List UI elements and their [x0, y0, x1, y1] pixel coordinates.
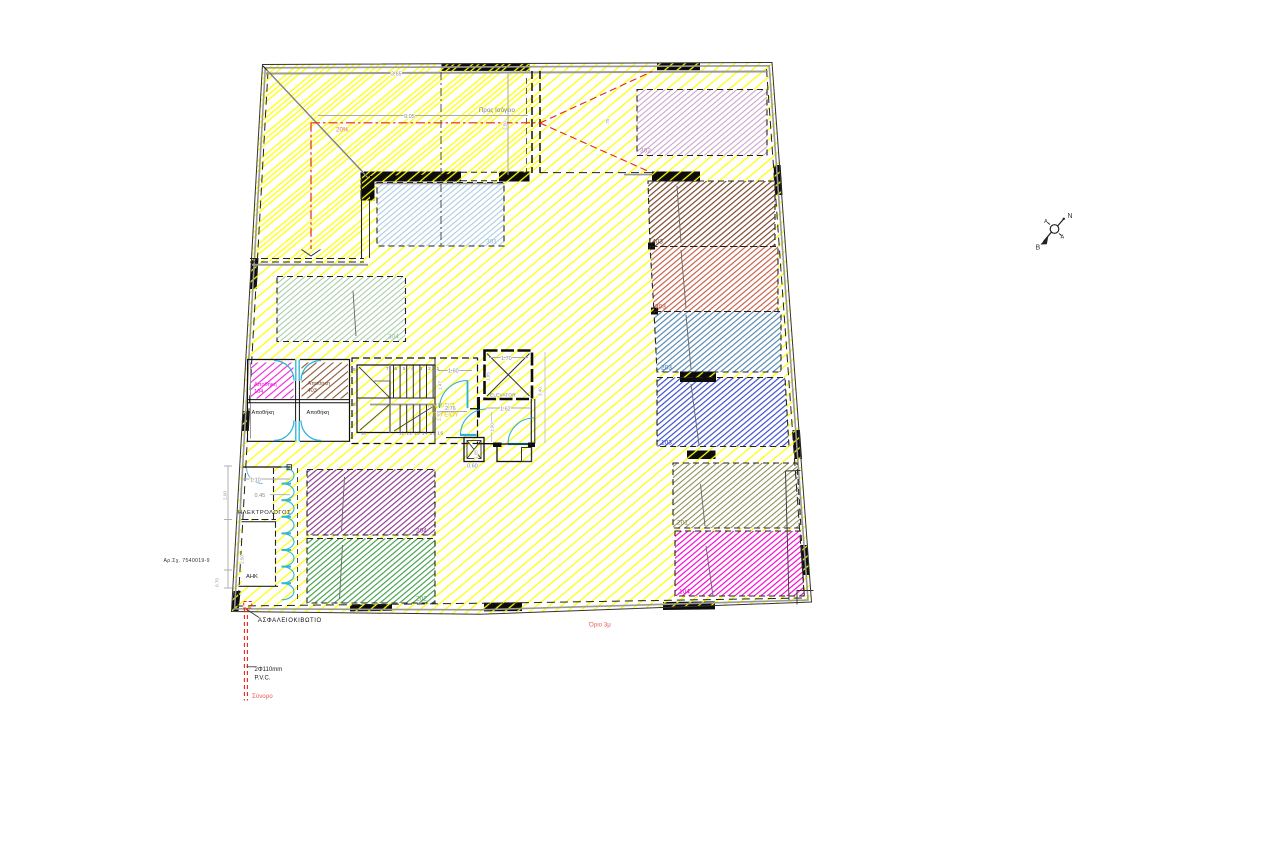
svg-text:P.V.C.: P.V.C.	[255, 675, 271, 681]
svg-text:11 12 13 14 15 16: 11 12 13 14 15 16	[399, 431, 444, 436]
svg-text:302: 302	[640, 148, 651, 155]
svg-text:3.40: 3.40	[538, 387, 543, 396]
svg-text:Αποθήκη: Αποθήκη	[252, 409, 275, 416]
svg-text:403: 403	[652, 239, 663, 246]
svg-text:304: 304	[388, 334, 399, 341]
svg-text:1.62: 1.62	[500, 407, 511, 413]
svg-text:ΥΠΟΓΕΙΟΥ: ΥΠΟΓΕΙΟΥ	[428, 413, 458, 419]
svg-text:3.65: 3.65	[391, 72, 402, 78]
svg-text:2.00: 2.00	[223, 491, 228, 500]
svg-text:ΗΛΕΚΤΡΟΛΟΓΟΣ: ΗΛΕΚΤΡΟΛΟΓΟΣ	[238, 510, 291, 516]
svg-text:7 6 5 4 3 2 1: 7 6 5 4 3 2 1	[386, 366, 441, 371]
svg-text:2.50: 2.50	[503, 121, 508, 130]
svg-text:Αποθήκη: Αποθήκη	[308, 380, 331, 387]
svg-text:Σύνορο: Σύνορο	[252, 693, 273, 700]
svg-text:Όριο 3μ: Όριο 3μ	[588, 622, 611, 629]
svg-text:20%: 20%	[336, 127, 349, 134]
svg-text:1.47: 1.47	[438, 381, 443, 390]
svg-text:9: 9	[353, 402, 356, 407]
svg-text:203: 203	[661, 365, 672, 372]
svg-text:9.05: 9.05	[404, 114, 415, 120]
svg-text:301: 301	[486, 239, 497, 246]
svg-text:0.70: 0.70	[215, 578, 220, 587]
svg-text:1.90: 1.90	[490, 423, 495, 432]
svg-text:.75: .75	[605, 118, 610, 125]
svg-text:2Φ110mm: 2Φ110mm	[255, 667, 283, 673]
svg-text:Αρ.Σχ. 7540019-9: Αρ.Σχ. 7540019-9	[164, 558, 210, 564]
svg-text:ΑΣΦΑΛΕΙΟΚΙΒΩΤΙΟ: ΑΣΦΑΛΕΙΟΚΙΒΩΤΙΟ	[258, 618, 322, 624]
svg-text:8: 8	[353, 367, 356, 372]
svg-text:ΑΗΚ: ΑΗΚ	[246, 574, 258, 580]
svg-text:104: 104	[679, 589, 690, 596]
svg-text:B: B	[1036, 245, 1041, 252]
svg-text:Προς Ισόγειο: Προς Ισόγειο	[479, 107, 515, 114]
svg-text:Α: Α	[1044, 219, 1048, 225]
svg-text:2.50: 2.50	[240, 555, 245, 564]
svg-text:Α: Α	[1061, 235, 1065, 241]
svg-text:1.05: 1.05	[474, 450, 479, 459]
svg-text:1.85: 1.85	[486, 372, 491, 381]
svg-text:Αποθήκη: Αποθήκη	[307, 409, 330, 416]
svg-text:204: 204	[416, 528, 427, 535]
svg-text:Αποθήκη: Αποθήκη	[254, 381, 277, 388]
svg-text:10: 10	[361, 431, 367, 436]
svg-text:202: 202	[416, 596, 427, 603]
svg-text:1.70: 1.70	[501, 356, 512, 362]
svg-text:0.45: 0.45	[255, 493, 266, 499]
svg-text:1.60: 1.60	[448, 369, 459, 375]
svg-text:103: 103	[661, 440, 672, 447]
svg-text:201: 201	[677, 520, 688, 527]
svg-text:N: N	[1068, 213, 1073, 220]
svg-text:303: 303	[655, 304, 666, 311]
svg-text:2.76: 2.76	[445, 406, 456, 412]
svg-text:104: 104	[254, 389, 263, 395]
svg-text:ELEVATOR: ELEVATOR	[490, 393, 516, 398]
svg-text:1.70: 1.70	[437, 412, 442, 421]
svg-text:403: 403	[308, 388, 317, 394]
svg-text:1.10: 1.10	[250, 477, 261, 483]
svg-text:0.60: 0.60	[467, 464, 478, 470]
